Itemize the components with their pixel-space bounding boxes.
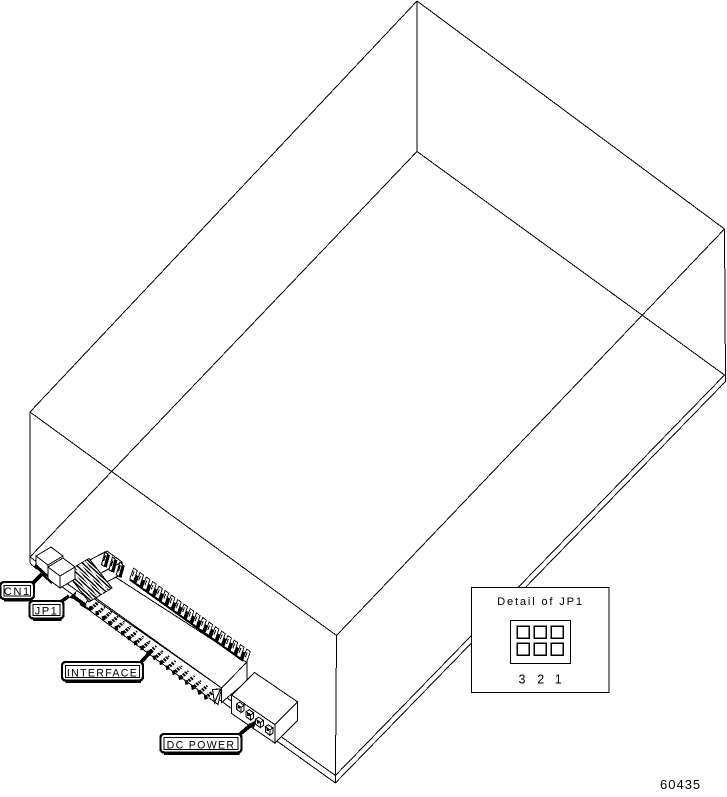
- svg-text:1: 1: [555, 673, 562, 687]
- svg-text:CN1: CN1: [4, 586, 31, 598]
- svg-text:60435: 60435: [660, 777, 701, 792]
- svg-text:DC POWER: DC POWER: [167, 739, 236, 751]
- svg-text:3: 3: [519, 673, 526, 687]
- svg-text:2: 2: [537, 673, 544, 687]
- svg-text:INTERFACE: INTERFACE: [67, 667, 138, 679]
- svg-text:Detail of JP1: Detail of JP1: [497, 596, 584, 608]
- svg-text:JP1: JP1: [35, 605, 59, 617]
